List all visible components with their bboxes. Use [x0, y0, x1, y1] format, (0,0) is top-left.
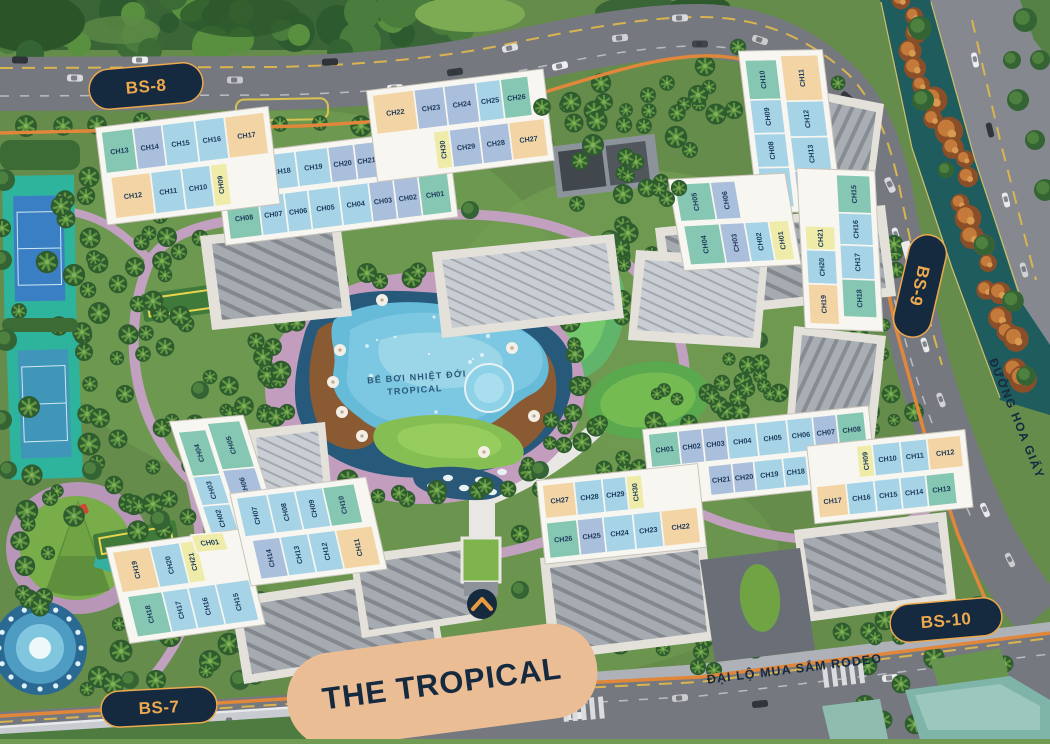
svg-text:CH12: CH12 — [936, 447, 955, 458]
svg-text:CH07: CH07 — [816, 427, 835, 438]
svg-text:CH13: CH13 — [932, 484, 951, 495]
svg-text:CH01: CH01 — [655, 444, 674, 455]
svg-text:CH23: CH23 — [639, 525, 658, 536]
svg-text:CH22: CH22 — [671, 521, 690, 532]
svg-text:CH01: CH01 — [199, 537, 220, 547]
svg-text:CH08: CH08 — [842, 424, 861, 435]
svg-text:CH15: CH15 — [879, 489, 898, 500]
svg-text:CH19: CH19 — [760, 469, 779, 480]
svg-text:CH20: CH20 — [734, 472, 753, 483]
svg-text:CH15: CH15 — [849, 185, 859, 204]
svg-text:CH10: CH10 — [878, 453, 897, 464]
svg-text:CH19: CH19 — [819, 295, 829, 314]
svg-text:CH20: CH20 — [817, 258, 827, 277]
svg-text:BS-7: BS-7 — [138, 697, 180, 718]
svg-text:CH21: CH21 — [712, 474, 731, 485]
svg-text:CH02: CH02 — [682, 441, 701, 452]
svg-text:BS-8: BS-8 — [125, 75, 167, 97]
svg-text:CH09: CH09 — [860, 451, 871, 470]
svg-text:CH24: CH24 — [610, 528, 629, 539]
svg-text:CH17: CH17 — [853, 253, 863, 272]
svg-text:CH16: CH16 — [852, 492, 871, 503]
svg-text:CH06: CH06 — [791, 430, 810, 441]
svg-text:CH30: CH30 — [630, 483, 641, 502]
svg-text:CH21: CH21 — [815, 229, 825, 248]
svg-text:CH26: CH26 — [554, 534, 573, 545]
svg-text:CH25: CH25 — [582, 531, 601, 542]
svg-text:CH04: CH04 — [733, 436, 752, 447]
svg-text:CH18: CH18 — [786, 466, 805, 477]
svg-text:CH17: CH17 — [823, 495, 842, 506]
svg-text:CH14: CH14 — [905, 487, 924, 498]
svg-text:CH05: CH05 — [763, 433, 782, 444]
svg-text:CH28: CH28 — [580, 492, 599, 503]
svg-text:CH03: CH03 — [706, 439, 725, 450]
svg-text:CH29: CH29 — [606, 489, 625, 500]
svg-text:CH11: CH11 — [905, 450, 924, 461]
svg-text:CH16: CH16 — [851, 220, 861, 239]
svg-text:CH27: CH27 — [550, 495, 569, 506]
svg-text:CH18: CH18 — [854, 289, 864, 308]
